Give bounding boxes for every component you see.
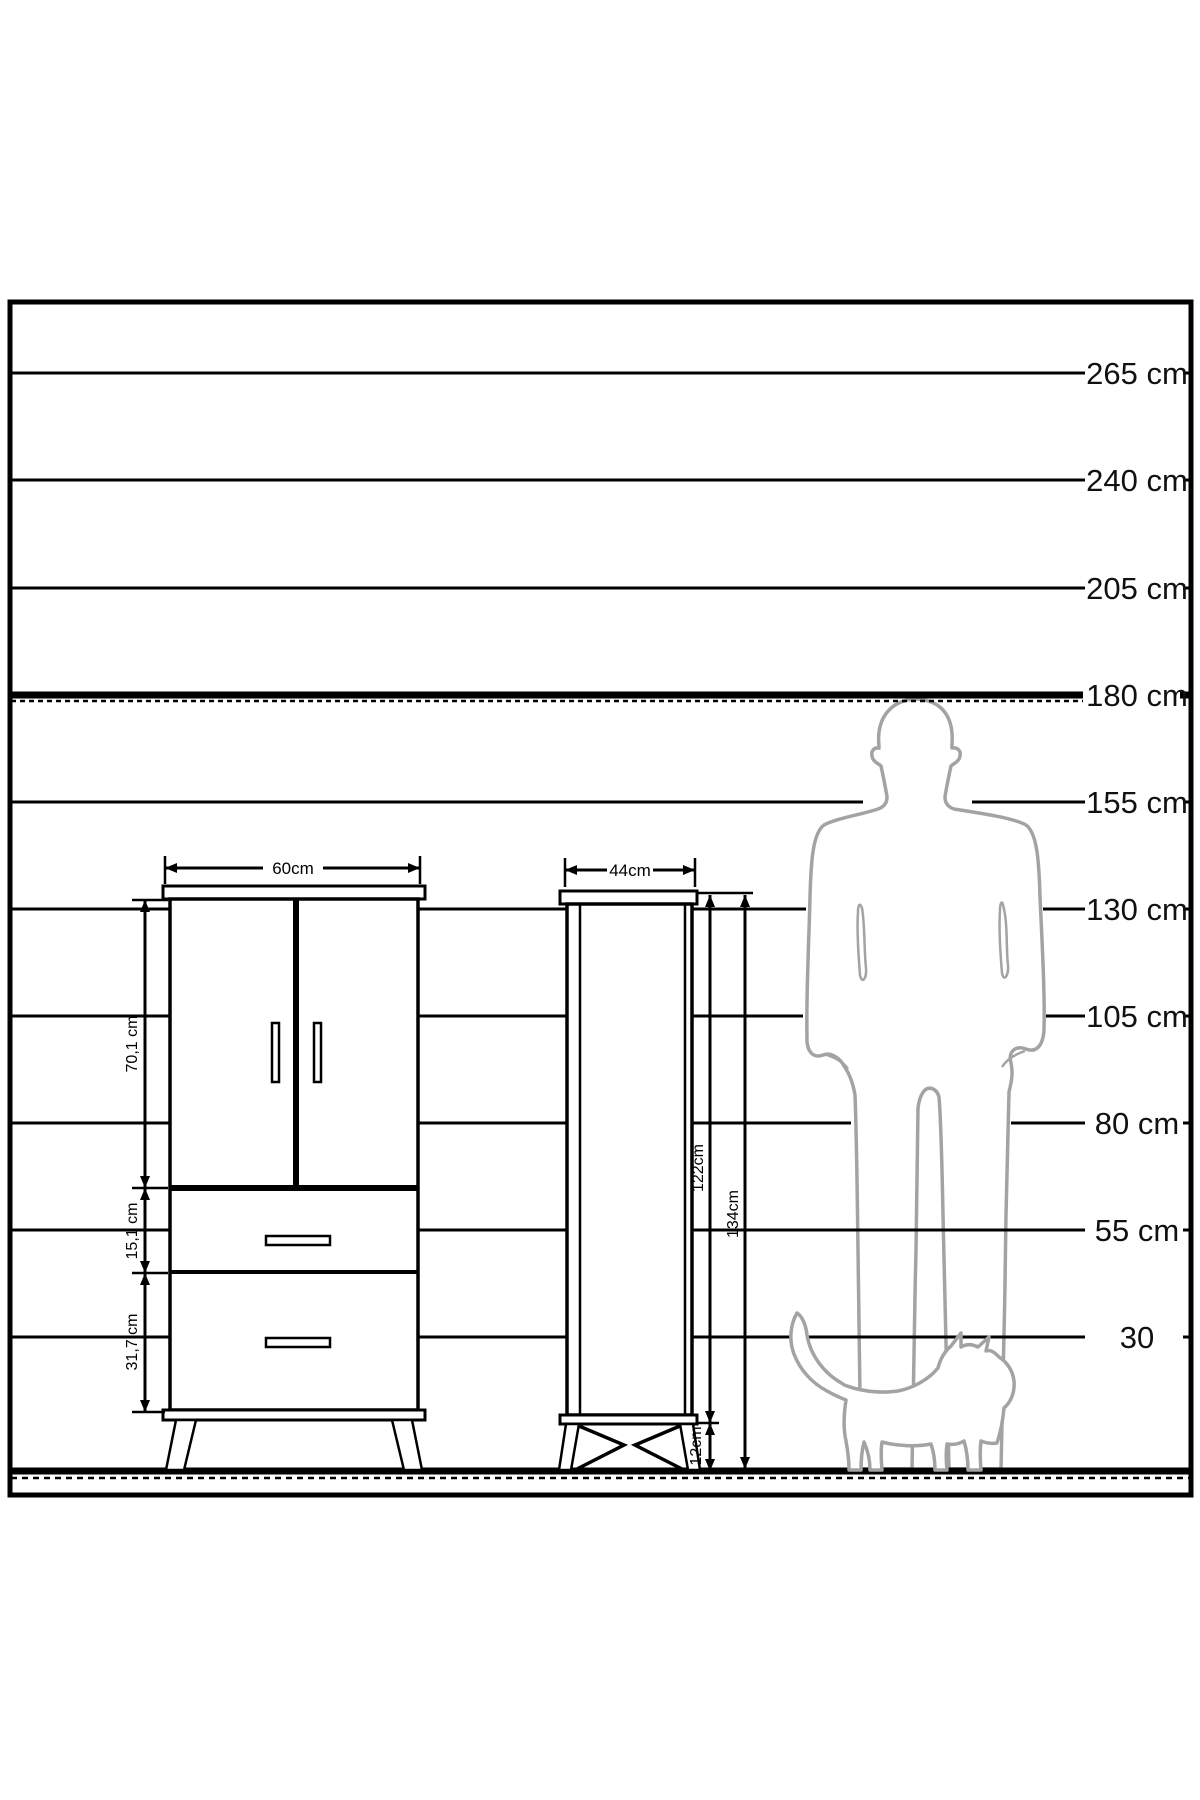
cabinet-1-top-panel xyxy=(163,886,425,899)
cabinet-1-width-label: 60cm xyxy=(272,859,314,878)
cabinet-2-legs-height-label: 12cm xyxy=(688,1426,705,1465)
cabinet-1-right-door-handle xyxy=(314,1023,321,1082)
cabinet-2-bottom-panel xyxy=(560,1415,697,1424)
cabinet-2-body-height-label: 122cm xyxy=(690,1144,707,1192)
cabinet-2 xyxy=(559,891,700,1470)
cabinet-1-bottom-panel xyxy=(163,1410,425,1420)
cabinet-1-left-door-handle xyxy=(272,1023,279,1082)
cabinet-1-left-leg xyxy=(166,1420,196,1470)
cabinet-2-top-panel xyxy=(560,891,697,904)
man-body-outline xyxy=(807,699,1044,1469)
scale-label-265: 265 cm xyxy=(1086,356,1188,391)
cabinet-2-left-leg xyxy=(559,1424,579,1470)
scale-label-80: 80 cm xyxy=(1095,1106,1179,1141)
cabinet-1-right-leg xyxy=(392,1420,422,1470)
cabinet-1-drawer-height-label: 15,1 cm xyxy=(124,1203,141,1260)
scale-label-30: 30 xyxy=(1120,1320,1154,1355)
scale-label-55: 55 cm xyxy=(1095,1213,1179,1248)
cabinet-2-body xyxy=(567,904,692,1415)
scale-label-240: 240 cm xyxy=(1086,463,1188,498)
scale-label-155: 155 cm xyxy=(1086,785,1188,820)
cabinet-1-drawer-1-handle xyxy=(266,1236,330,1245)
cabinet-2-leg-braces xyxy=(577,1426,682,1469)
scale-label-130: 130 cm xyxy=(1086,892,1188,927)
furniture-dimension-diagram: 60cm 44cm 70,1 cm 15,1 cm 31,7 cm 122cm … xyxy=(0,0,1200,1800)
cabinet-1-lower-height-label: 31,7 cm xyxy=(124,1314,141,1371)
scale-label-180: 180 cm xyxy=(1086,678,1188,713)
man-silhouette xyxy=(807,699,1044,1469)
cabinet-1-upper-height-label: 70,1 cm xyxy=(124,1016,141,1073)
scale-label-205: 205 cm xyxy=(1086,571,1188,606)
cabinet-1 xyxy=(163,886,425,1470)
cabinet-2-total-height-label: 134cm xyxy=(725,1190,742,1238)
cabinet-1-drawer-2-handle xyxy=(266,1338,330,1347)
scale-label-105: 105 cm xyxy=(1086,999,1188,1034)
cabinet-2-width-label: 44cm xyxy=(609,861,651,880)
